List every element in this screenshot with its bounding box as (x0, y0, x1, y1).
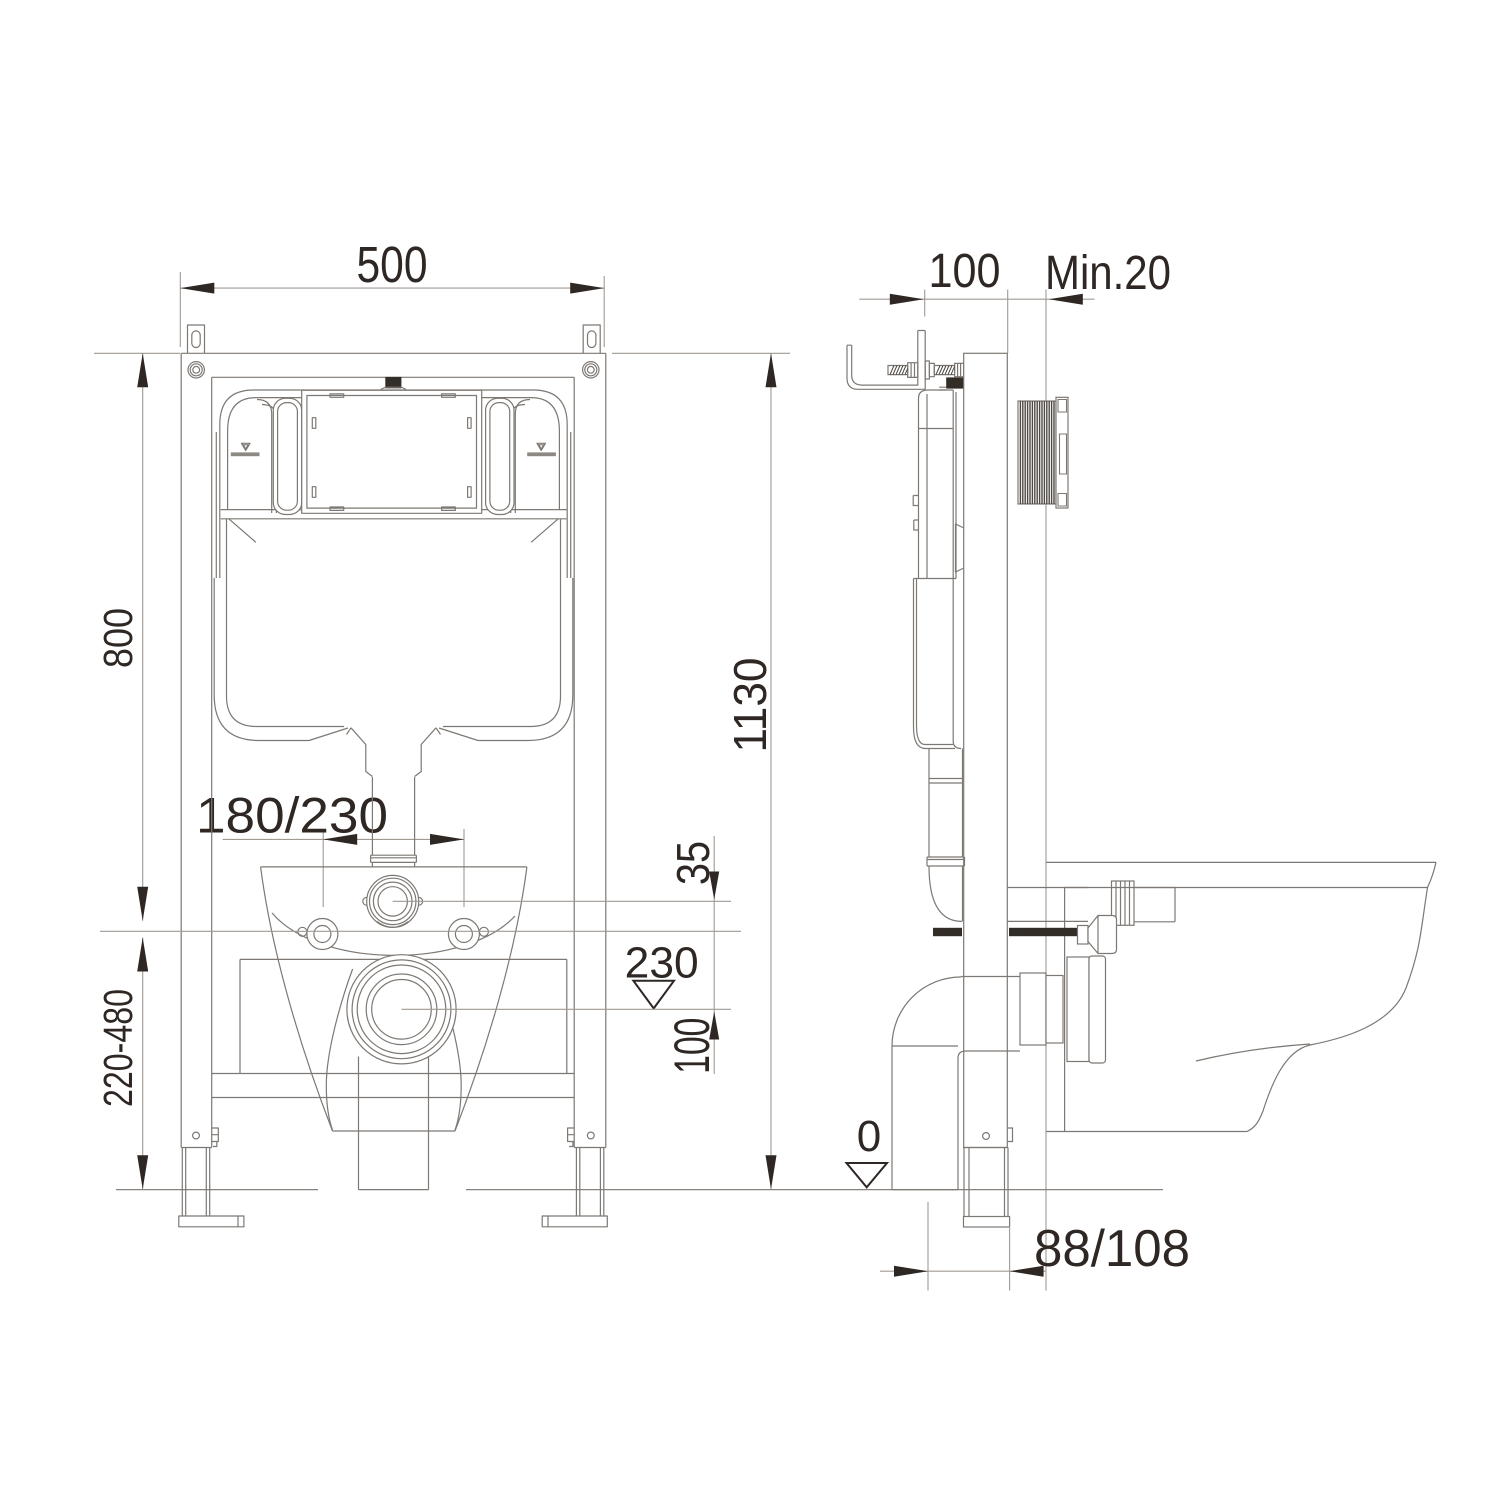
svg-text:Min.20: Min.20 (1045, 247, 1171, 300)
svg-text:88/108: 88/108 (1034, 1220, 1190, 1278)
svg-text:500: 500 (357, 236, 428, 293)
svg-text:800: 800 (95, 608, 141, 668)
svg-text:220-480: 220-480 (95, 989, 141, 1107)
svg-text:180/230: 180/230 (196, 788, 388, 844)
svg-text:100: 100 (929, 245, 1001, 298)
svg-text:100: 100 (664, 1018, 720, 1074)
svg-text:35: 35 (667, 841, 719, 885)
svg-text:1130: 1130 (724, 658, 776, 753)
svg-text:0: 0 (857, 1112, 881, 1161)
